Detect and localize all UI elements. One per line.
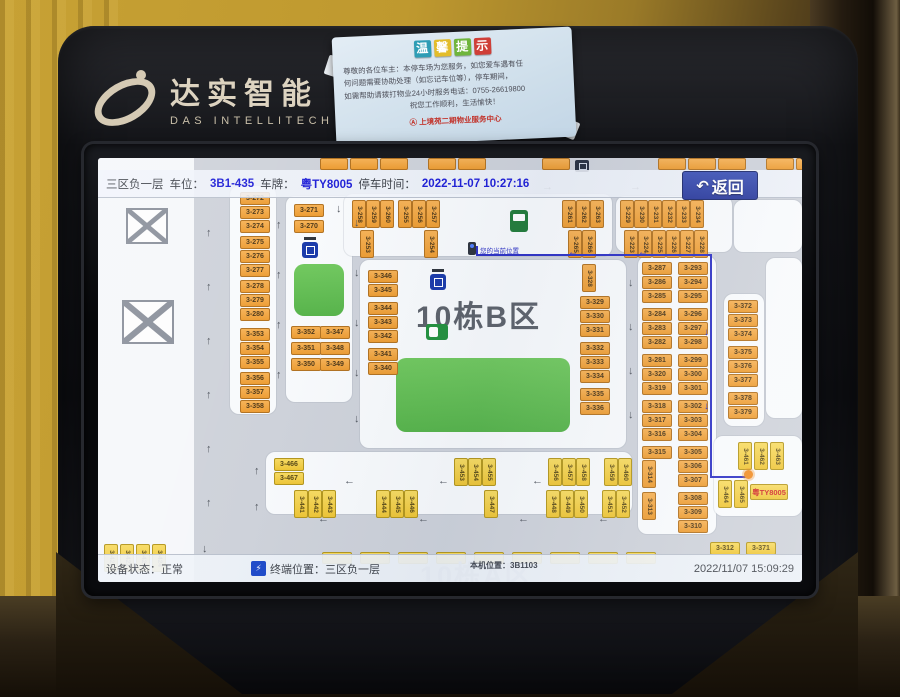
parking-spot: 3-352 [291, 326, 321, 339]
parking-spot: 3-295 [678, 290, 708, 303]
parking-spot: 3-316 [642, 428, 672, 441]
map-island [734, 200, 802, 252]
back-arrow-icon: ↶ [696, 177, 709, 195]
parking-spot-cut [766, 158, 794, 170]
parking-spot: 3-319 [642, 382, 672, 395]
parking-spot: 3-441 [294, 490, 308, 518]
parking-spot: 3-307 [678, 474, 708, 487]
map-island [766, 258, 802, 418]
parking-spot: 3-446 [404, 490, 418, 518]
status-bar: 设备状态：正常 ⚡ 终端位置：三区负一层 2022/11/07 15:09:29 [98, 554, 802, 582]
lane-arrow: ↑ [206, 390, 212, 401]
lane-arrow: ↑ [206, 336, 212, 347]
lane-arrow: ↑ [276, 270, 282, 281]
parking-spot: 3-343 [368, 316, 398, 329]
terminal-location: 终端位置：三区负一层 [270, 561, 380, 577]
parking-spot: 3-356 [240, 372, 270, 385]
parking-spot: 3-280 [240, 308, 270, 321]
lane-arrow: ↓ [354, 414, 360, 425]
parking-spot: 3-330 [580, 310, 610, 323]
lane-arrow: ↑ [206, 228, 212, 239]
kiosk-photo: 达实智能 DAS INTELLITECH 温 馨 提 示 尊敬的各位车主：本停车… [0, 0, 900, 697]
parking-spot: 3-314 [642, 460, 656, 488]
brand-name-en: DAS INTELLITECH [170, 115, 333, 127]
parking-spot: 3-377 [728, 374, 758, 387]
parking-spot: 3-331 [580, 324, 610, 337]
green-area [294, 264, 344, 316]
route-arrow: ← [638, 248, 648, 258]
parking-spot: 3-275 [240, 236, 270, 249]
parking-spot-cut [658, 158, 686, 170]
parking-spot: 3-341 [368, 348, 398, 361]
parking-spot: 3-466 [274, 458, 304, 471]
lane-arrow: ← [438, 476, 449, 487]
parking-spot: 3-353 [240, 328, 270, 341]
parking-spot: 3-465 [734, 480, 748, 508]
sticker-title-char: 提 [453, 38, 471, 56]
parking-spot: 3-373 [728, 314, 758, 327]
parking-spot: 3-255 [398, 200, 412, 228]
broken-image-icon [122, 300, 174, 344]
parking-spot: 3-378 [728, 392, 758, 405]
parking-spot-cut [428, 158, 456, 170]
lane-arrow: ↓ [354, 218, 360, 229]
machine-code: 本机位置：3B1103 [470, 560, 538, 571]
route-line [710, 476, 748, 478]
parking-spot: 3-455 [482, 458, 496, 486]
parking-spot: 3-449 [560, 490, 574, 518]
lane-arrow: ← [344, 476, 355, 487]
parking-spot: 3-278 [240, 280, 270, 293]
parking-spot: 3-444 [376, 490, 390, 518]
parking-spot: 3-305 [678, 446, 708, 459]
parking-spot: 3-467 [274, 472, 304, 485]
parking-spot: 3-450 [574, 490, 588, 518]
parking-spot: 3-282 [642, 336, 672, 349]
parking-spot: 3-379 [728, 406, 758, 419]
lane-arrow: ↑ [254, 502, 260, 513]
route-line [476, 246, 478, 254]
parking-spot: 3-287 [642, 262, 672, 275]
back-button-label: 返回 [712, 174, 744, 198]
lane-arrow: ↑ [276, 320, 282, 331]
car-location-dot [744, 470, 753, 479]
parking-spot: 3-340 [368, 362, 398, 375]
lane-arrow: ↓ [336, 204, 342, 215]
parking-spot: 3-256 [412, 200, 426, 228]
parking-spot: 3-317 [642, 414, 672, 427]
lane-arrow: ↓ [354, 268, 360, 279]
parking-spot: 3-233 [676, 200, 690, 228]
parking-spot: 3-355 [240, 356, 270, 369]
parking-spot: 3-308 [678, 492, 708, 505]
parking-spot: 3-463 [770, 442, 784, 470]
parking-spot: 3-281 [642, 354, 672, 367]
parking-spot: 3-453 [454, 458, 468, 486]
parking-spot: 3-293 [678, 262, 708, 275]
parking-spot: 3-354 [240, 342, 270, 355]
parking-spot: 3-276 [240, 250, 270, 263]
parking-spot: 3-358 [240, 400, 270, 413]
parking-spot: 3-286 [642, 276, 672, 289]
parking-spot: 3-335 [580, 388, 610, 401]
route-arrow: ← [568, 248, 578, 258]
parking-spot: 3-270 [294, 220, 324, 233]
lane-arrow: ↓ [628, 278, 634, 289]
parking-spot: 3-344 [368, 302, 398, 315]
parking-spot: 3-304 [678, 428, 708, 441]
sticker-title-char: 温 [413, 40, 431, 58]
parking-spot: 3-279 [240, 294, 270, 307]
parking-spot: 3-313 [642, 492, 656, 520]
parking-spot: 3-285 [642, 290, 672, 303]
parking-spot: 3-376 [728, 360, 758, 373]
parking-spot-cut [320, 158, 348, 170]
header-spot-label: 车位： [170, 176, 205, 192]
parking-spot: 3-320 [642, 368, 672, 381]
parking-spot: 3-462 [754, 442, 768, 470]
parking-spot: 3-372 [728, 300, 758, 313]
parking-spot-cut [350, 158, 378, 170]
parking-spot: 3-284 [642, 308, 672, 321]
parking-spot-cut [688, 158, 716, 170]
parking-spot: 3-333 [580, 356, 610, 369]
parking-spot: 3-452 [616, 490, 630, 518]
broken-image-icon [126, 208, 168, 244]
parking-spot: 3-230 [634, 200, 648, 228]
parking-spot: 3-294 [678, 276, 708, 289]
brand-logo: 达实智能 DAS INTELLITECH [84, 62, 333, 134]
parking-spot-cut [796, 158, 802, 170]
parking-spot: 3-257 [426, 200, 440, 228]
parking-spot: 3-318 [642, 400, 672, 413]
parking-spot: 3-350 [291, 358, 321, 371]
lane-arrow: ↑ [254, 466, 260, 477]
header-time-value: 2022-11-07 10:27:16 [422, 178, 529, 190]
current-position-marker [468, 242, 476, 255]
parking-spot: 3-309 [678, 506, 708, 519]
header-plate-value: 粤TY8005 [301, 176, 353, 192]
parking-spot: 3-351 [291, 342, 321, 355]
parking-spot-cut [718, 158, 746, 170]
map-layer[interactable]: 3-2723-2733-2743-2753-2763-2773-2783-279… [98, 158, 802, 582]
current-position-label: 您的当前位置 [480, 245, 519, 255]
parking-spot: 3-231 [648, 200, 662, 228]
elevator-icon [302, 242, 318, 258]
header-zone: 三区负一层 [106, 176, 164, 192]
charging-station-icon [426, 324, 448, 340]
parking-spot: 3-301 [678, 382, 708, 395]
parking-spot: 3-456 [548, 458, 562, 486]
parking-spot: 3-310 [678, 520, 708, 533]
route-arrow: ↓ [704, 328, 709, 338]
route-arrow: ↓ [704, 402, 709, 412]
parking-spot: 3-459 [604, 458, 618, 486]
header-plate-label: 车牌： [260, 176, 295, 192]
parking-spot: 3-460 [618, 458, 632, 486]
elevator-icon [430, 274, 446, 290]
parking-spot: 3-254 [424, 230, 438, 258]
parking-spot: 3-461 [738, 442, 752, 470]
parking-spot: 3-448 [546, 490, 560, 518]
parking-spot: 3-274 [240, 220, 270, 233]
sticker-title-char: 馨 [433, 39, 451, 57]
header-time-label: 停车时间： [358, 176, 416, 192]
header-spot-value: 3B1-435 [210, 178, 254, 190]
parking-spot: 3-334 [580, 370, 610, 383]
parking-spot: 3-299 [678, 354, 708, 367]
parking-spot: 3-329 [580, 296, 610, 309]
parking-spot: 3-357 [240, 386, 270, 399]
parking-spot: 3-348 [320, 342, 350, 355]
screen: 3-2723-2733-2743-2753-2763-2773-2783-279… [98, 158, 802, 582]
query-machine-icon [510, 210, 528, 232]
sticker-title-char: 示 [473, 37, 491, 55]
parking-spot: 3-336 [580, 402, 610, 415]
parking-spot: 3-232 [662, 200, 676, 228]
lane-arrow: ↓ [628, 410, 634, 421]
parking-spot: 3-277 [240, 264, 270, 277]
parking-spot: 3-260 [380, 200, 394, 228]
parking-spot: 3-346 [368, 270, 398, 283]
notice-sticker: 温 馨 提 示 尊敬的各位车主：本停车场为您服务，如您爱车遇有任 何问题需要协助… [332, 27, 577, 148]
parking-spot: 3-375 [728, 346, 758, 359]
parking-spot: 3-332 [580, 342, 610, 355]
parking-spot: 3-262 [576, 200, 590, 228]
destination-spot: 粤TY8005 [750, 484, 788, 500]
parking-spot: 3-300 [678, 368, 708, 381]
lane-arrow: ← [418, 514, 429, 525]
terminal-icon: ⚡ [251, 561, 266, 576]
parking-spot: 3-374 [728, 328, 758, 341]
lane-arrow: ↑ [206, 444, 212, 455]
parking-spot: 3-303 [678, 414, 708, 427]
parking-spot: 3-458 [576, 458, 590, 486]
parking-spot: 3-457 [562, 458, 576, 486]
parking-spot: 3-283 [642, 322, 672, 335]
parking-spot: 3-261 [562, 200, 576, 228]
parking-spot: 3-263 [590, 200, 604, 228]
lane-arrow: ← [598, 514, 609, 525]
brand-name-cn: 达实智能 [170, 69, 333, 113]
parking-spot: 3-349 [320, 358, 350, 371]
parking-spot: 3-347 [320, 326, 350, 339]
parking-spot: 3-447 [484, 490, 498, 518]
back-button[interactable]: ↶ 返回 [682, 171, 758, 200]
parking-spot-cut [542, 158, 570, 170]
parking-spot: 3-315 [642, 446, 672, 459]
lane-arrow: ↓ [628, 322, 634, 333]
lane-arrow: ↑ [276, 370, 282, 381]
lane-arrow: ← [318, 514, 329, 525]
parking-spot: 3-306 [678, 460, 708, 473]
parking-spot: 3-271 [294, 204, 324, 217]
parking-spot: 3-273 [240, 206, 270, 219]
lane-arrow: ↑ [206, 498, 212, 509]
parking-spot: 3-259 [366, 200, 380, 228]
parking-spot: 3-445 [390, 490, 404, 518]
parking-spot: 3-454 [468, 458, 482, 486]
parking-spot-cut [458, 158, 486, 170]
parking-spot: 3-296 [678, 308, 708, 321]
parking-spot-cut [380, 158, 408, 170]
lane-arrow: ↓ [354, 318, 360, 329]
lane-arrow: ↑ [206, 282, 212, 293]
device-status: 设备状态：正常 [106, 561, 183, 577]
parking-spot: 3-342 [368, 330, 398, 343]
green-area [396, 358, 570, 432]
parking-spot: 3-234 [690, 200, 704, 228]
lane-arrow: ↓ [628, 366, 634, 377]
parking-spot: 3-464 [718, 480, 732, 508]
lane-arrow: ↑ [276, 220, 282, 231]
status-datetime: 2022/11/07 15:09:29 [694, 563, 794, 575]
parking-spot: 3-328 [582, 264, 596, 292]
parking-spot: 3-229 [620, 200, 634, 228]
brand-swoosh-icon [84, 62, 158, 134]
lane-arrow: ← [532, 476, 543, 487]
parking-spot: 3-345 [368, 284, 398, 297]
lane-arrow: ← [518, 514, 529, 525]
lane-arrow: ↓ [354, 368, 360, 379]
route-line [710, 254, 712, 476]
parking-spot: 3-253 [360, 230, 374, 258]
